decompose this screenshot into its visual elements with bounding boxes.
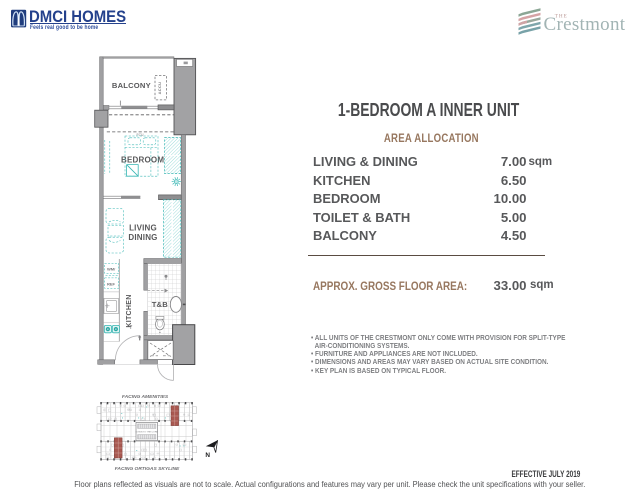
svg-text:BALCONY: BALCONY: [112, 81, 151, 90]
svg-text:T&B: T&B: [152, 300, 169, 309]
svg-text:N: N: [205, 452, 210, 459]
svg-text:DINING: DINING: [128, 233, 157, 242]
svg-text:Crestmont: Crestmont: [544, 14, 626, 35]
svg-text:DOWN TO THE CORE: DOWN TO THE CORE: [136, 432, 159, 434]
svg-text:FACING ORTIGAS SKYLINE: FACING ORTIGAS SKYLINE: [115, 466, 180, 472]
svg-text:KITCHEN: KITCHEN: [125, 294, 133, 327]
svg-text:FACING AMENITIES: FACING AMENITIES: [122, 394, 169, 400]
svg-text:REF: REF: [107, 281, 116, 286]
svg-text:LIVING: LIVING: [129, 224, 157, 233]
svg-text:WM/: WM/: [107, 267, 116, 272]
svg-text:ACCU: ACCU: [157, 82, 162, 95]
